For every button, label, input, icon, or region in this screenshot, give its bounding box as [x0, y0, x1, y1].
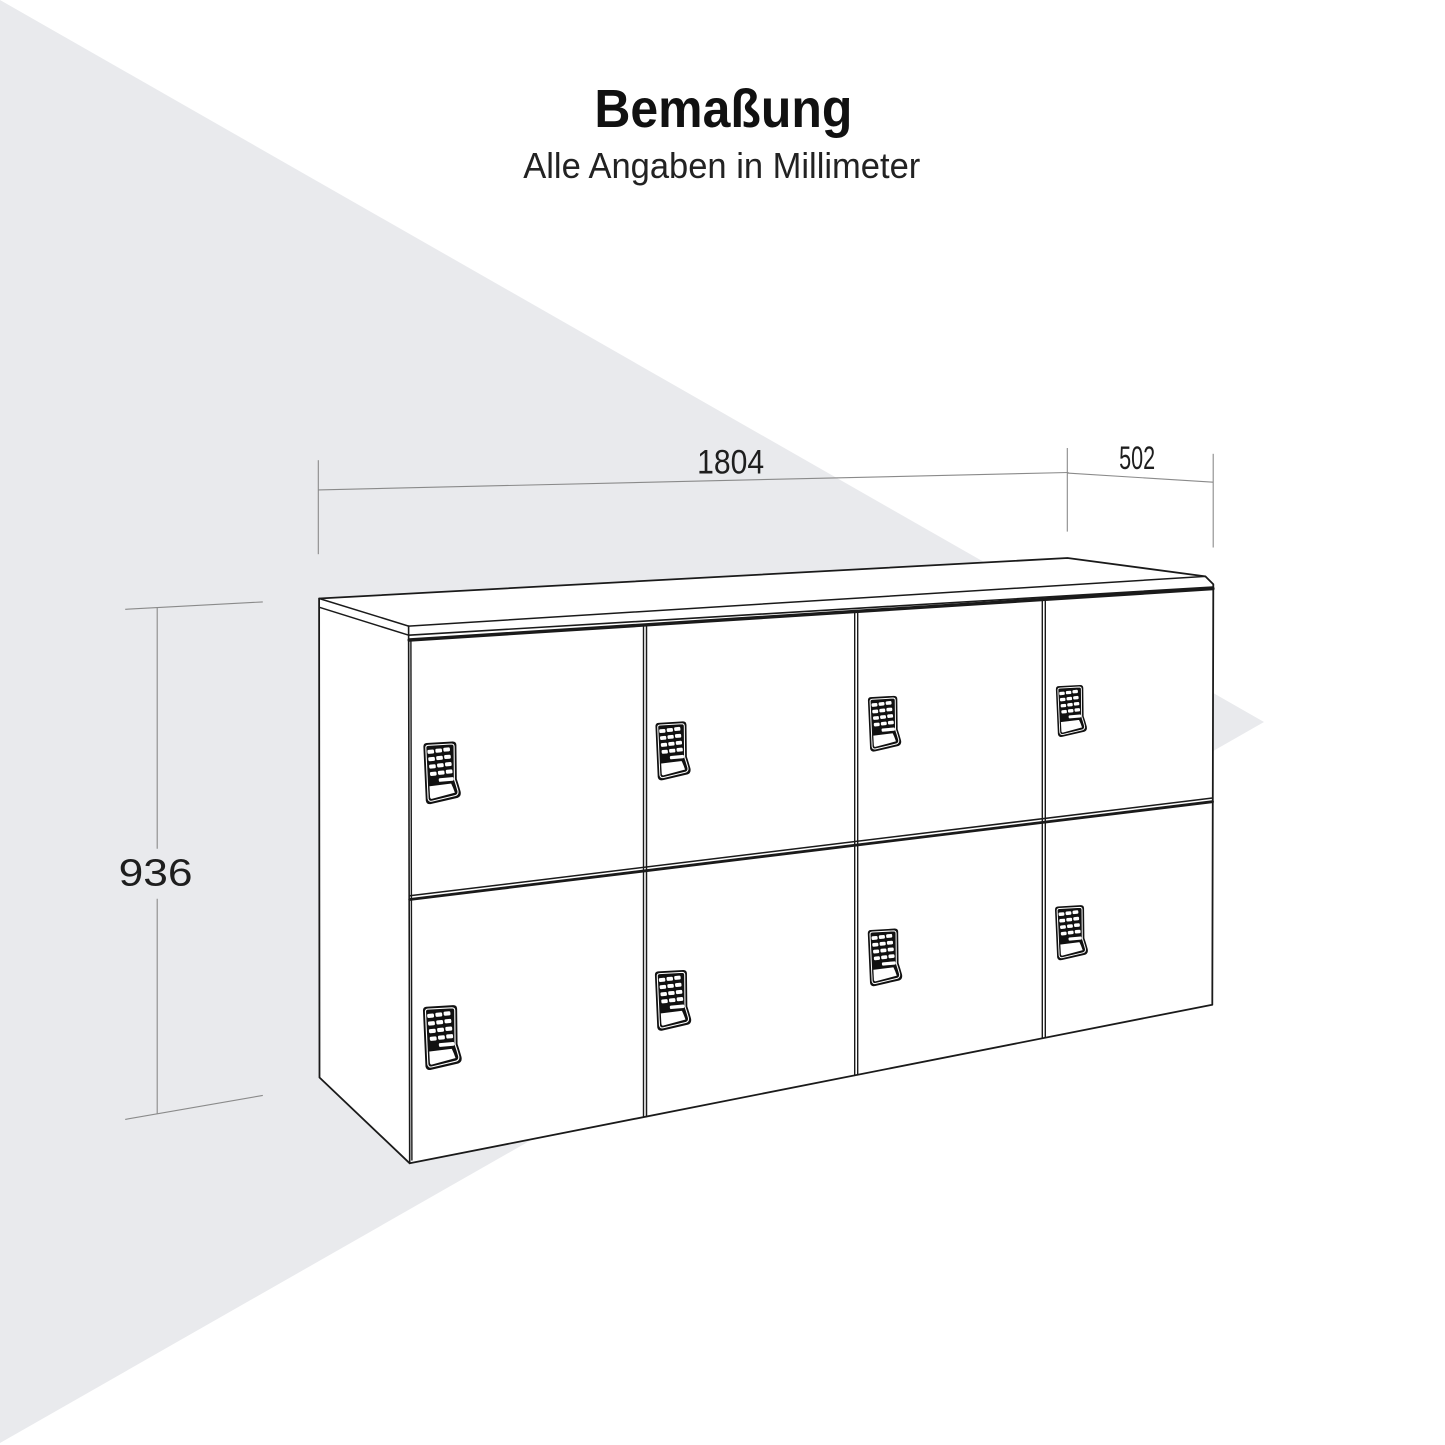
svg-text:1804: 1804 — [697, 443, 764, 481]
svg-text:502: 502 — [1119, 440, 1155, 476]
svg-text:Alle Angaben in Millimeter: Alle Angaben in Millimeter — [523, 145, 920, 186]
svg-text:936: 936 — [119, 852, 193, 894]
svg-text:Bemaßung: Bemaßung — [594, 79, 852, 139]
